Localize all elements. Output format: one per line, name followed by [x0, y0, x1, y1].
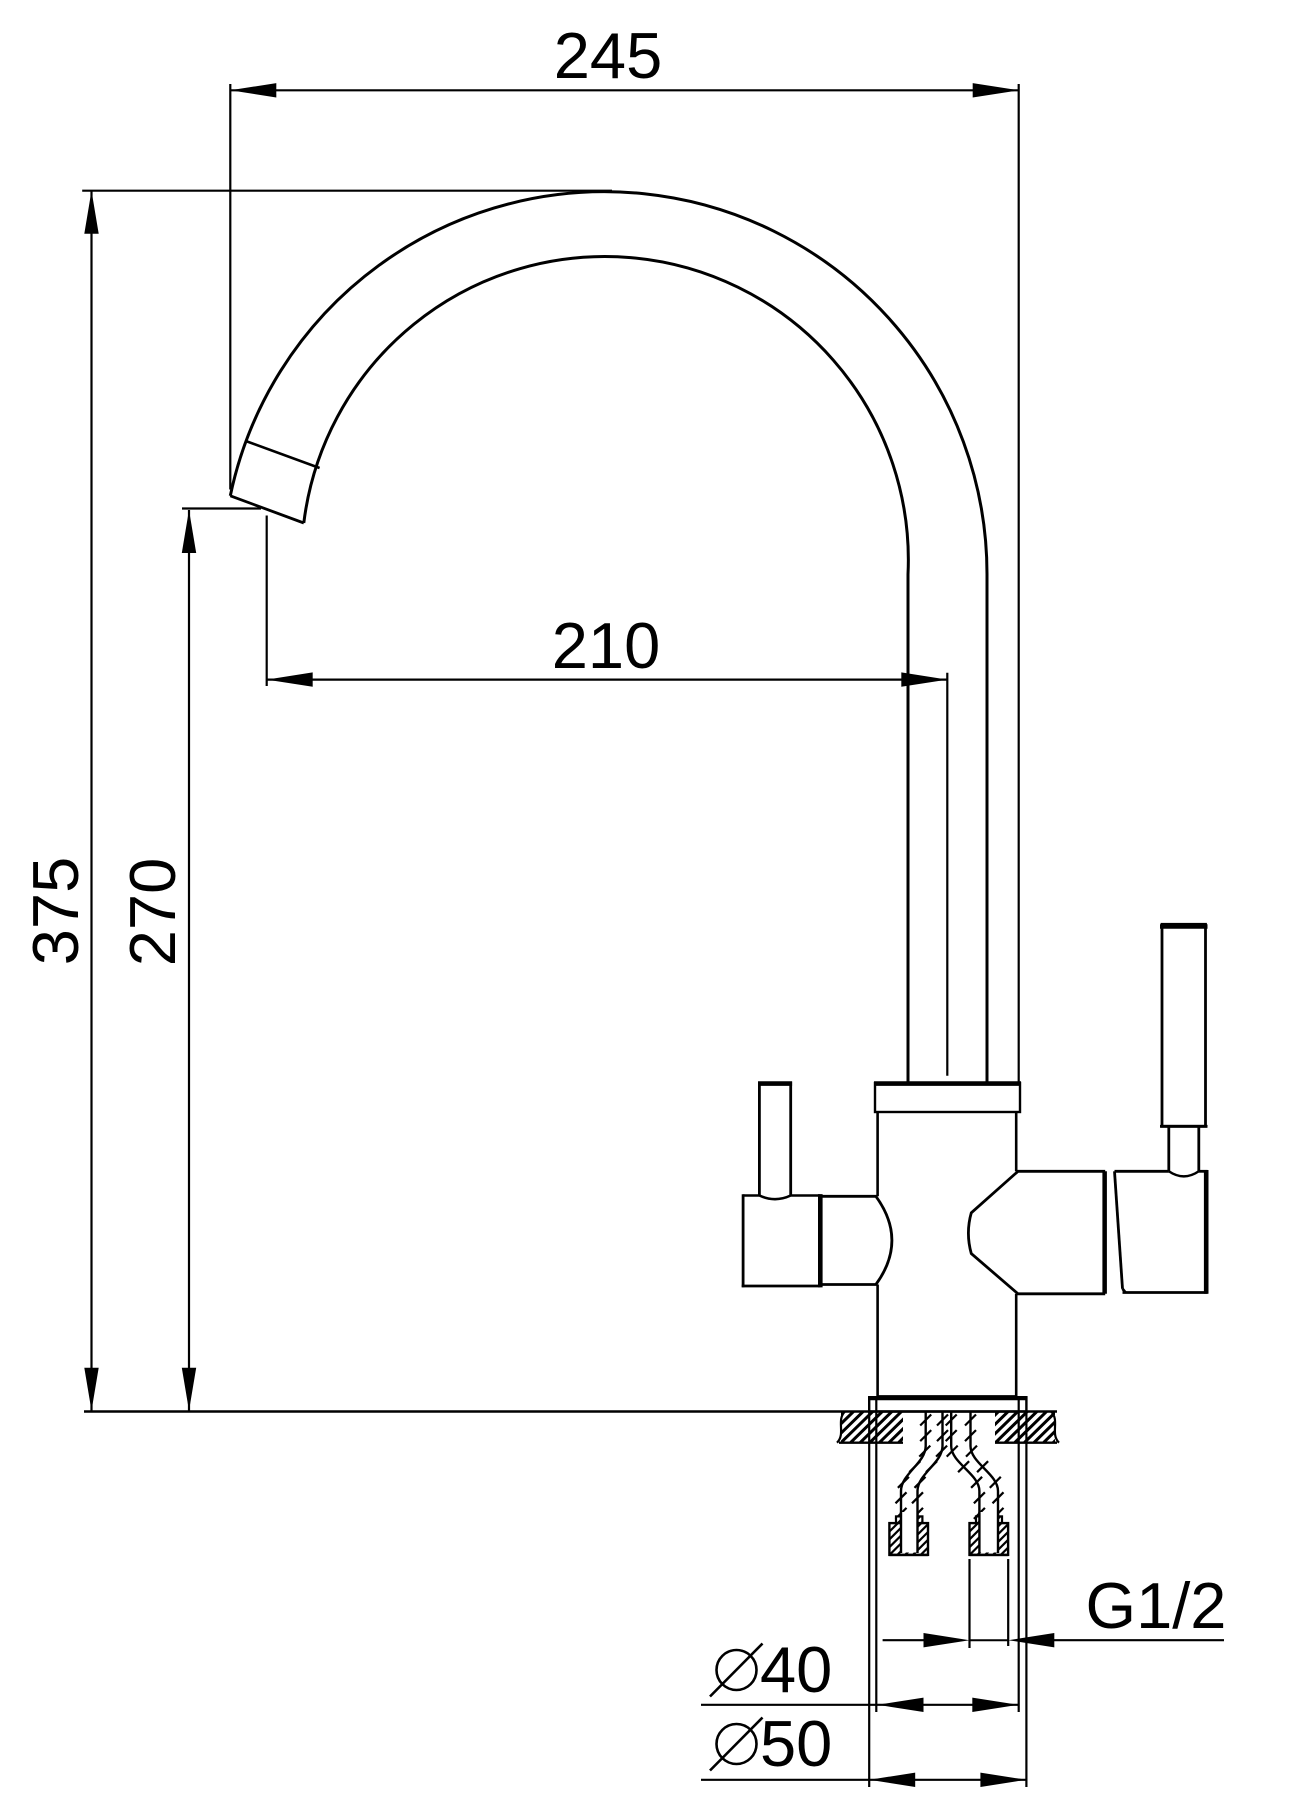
svg-text:G1/2: G1/2 [1086, 1569, 1227, 1642]
svg-text:50: 50 [760, 1707, 832, 1780]
svg-text:210: 210 [552, 609, 660, 682]
svg-text:375: 375 [19, 857, 92, 965]
svg-text:270: 270 [116, 858, 189, 966]
svg-text:245: 245 [554, 19, 662, 92]
svg-text:40: 40 [760, 1633, 832, 1706]
